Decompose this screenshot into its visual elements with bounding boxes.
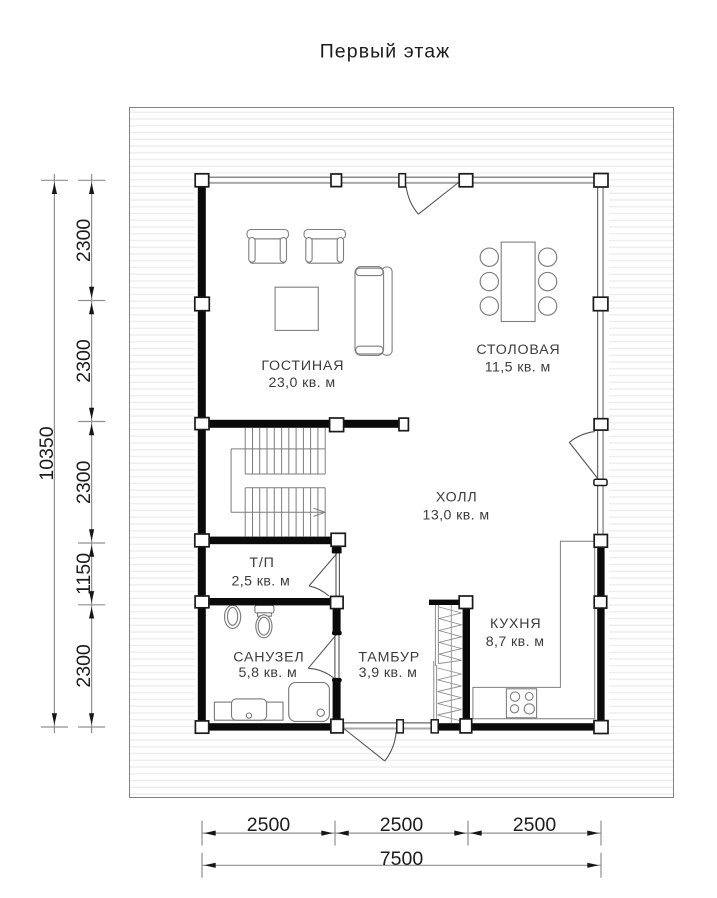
svg-text:2500: 2500 <box>513 814 557 836</box>
svg-text:2,5 кв. м: 2,5 кв. м <box>231 573 290 589</box>
svg-text:5,8 кв. м: 5,8 кв. м <box>238 665 297 681</box>
svg-text:2300: 2300 <box>73 219 95 263</box>
svg-text:23,0 кв. м: 23,0 кв. м <box>269 375 336 391</box>
svg-text:ГОСТИНАЯ: ГОСТИНАЯ <box>261 358 344 374</box>
svg-text:Т/П: Т/П <box>249 555 274 571</box>
svg-text:2500: 2500 <box>247 814 291 836</box>
svg-text:3,9 кв. м: 3,9 кв. м <box>359 665 418 681</box>
svg-text:ХОЛЛ: ХОЛЛ <box>436 490 478 506</box>
svg-text:13,0 кв. м: 13,0 кв. м <box>423 508 490 524</box>
svg-text:КУХНЯ: КУХНЯ <box>490 616 541 632</box>
svg-text:1150: 1150 <box>73 553 95 595</box>
svg-text:8,7 кв. м: 8,7 кв. м <box>486 634 545 650</box>
svg-text:ТАМБУР: ТАМБУР <box>358 649 420 665</box>
svg-text:2300: 2300 <box>73 644 95 688</box>
svg-text:10350: 10350 <box>36 426 58 480</box>
svg-text:2300: 2300 <box>73 339 95 383</box>
svg-text:11,5 кв. м: 11,5 кв. м <box>485 360 551 376</box>
svg-text:САНУЗЕЛ: САНУЗЕЛ <box>233 649 304 665</box>
svg-text:2500: 2500 <box>380 814 424 836</box>
svg-text:2300: 2300 <box>73 460 95 504</box>
svg-text:Первый этаж: Первый этаж <box>320 41 451 63</box>
svg-text:7500: 7500 <box>380 848 424 870</box>
svg-text:СТОЛОВАЯ: СТОЛОВАЯ <box>476 342 560 358</box>
